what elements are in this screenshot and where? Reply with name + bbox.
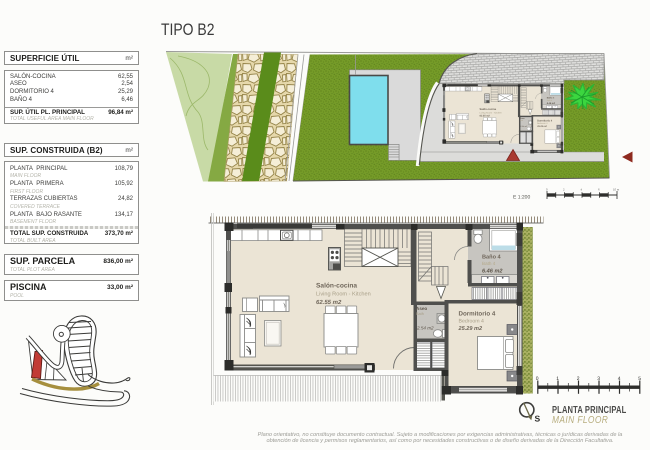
svg-text:2: 2 [563,188,565,192]
svg-text:4: 4 [581,188,583,192]
svg-text:0: 0 [546,188,548,192]
svg-text:6: 6 [598,188,600,192]
svg-text:E 1:200: E 1:200 [513,195,530,201]
svg-text:10 m: 10 m [613,188,620,192]
svg-text:S: S [535,414,541,424]
